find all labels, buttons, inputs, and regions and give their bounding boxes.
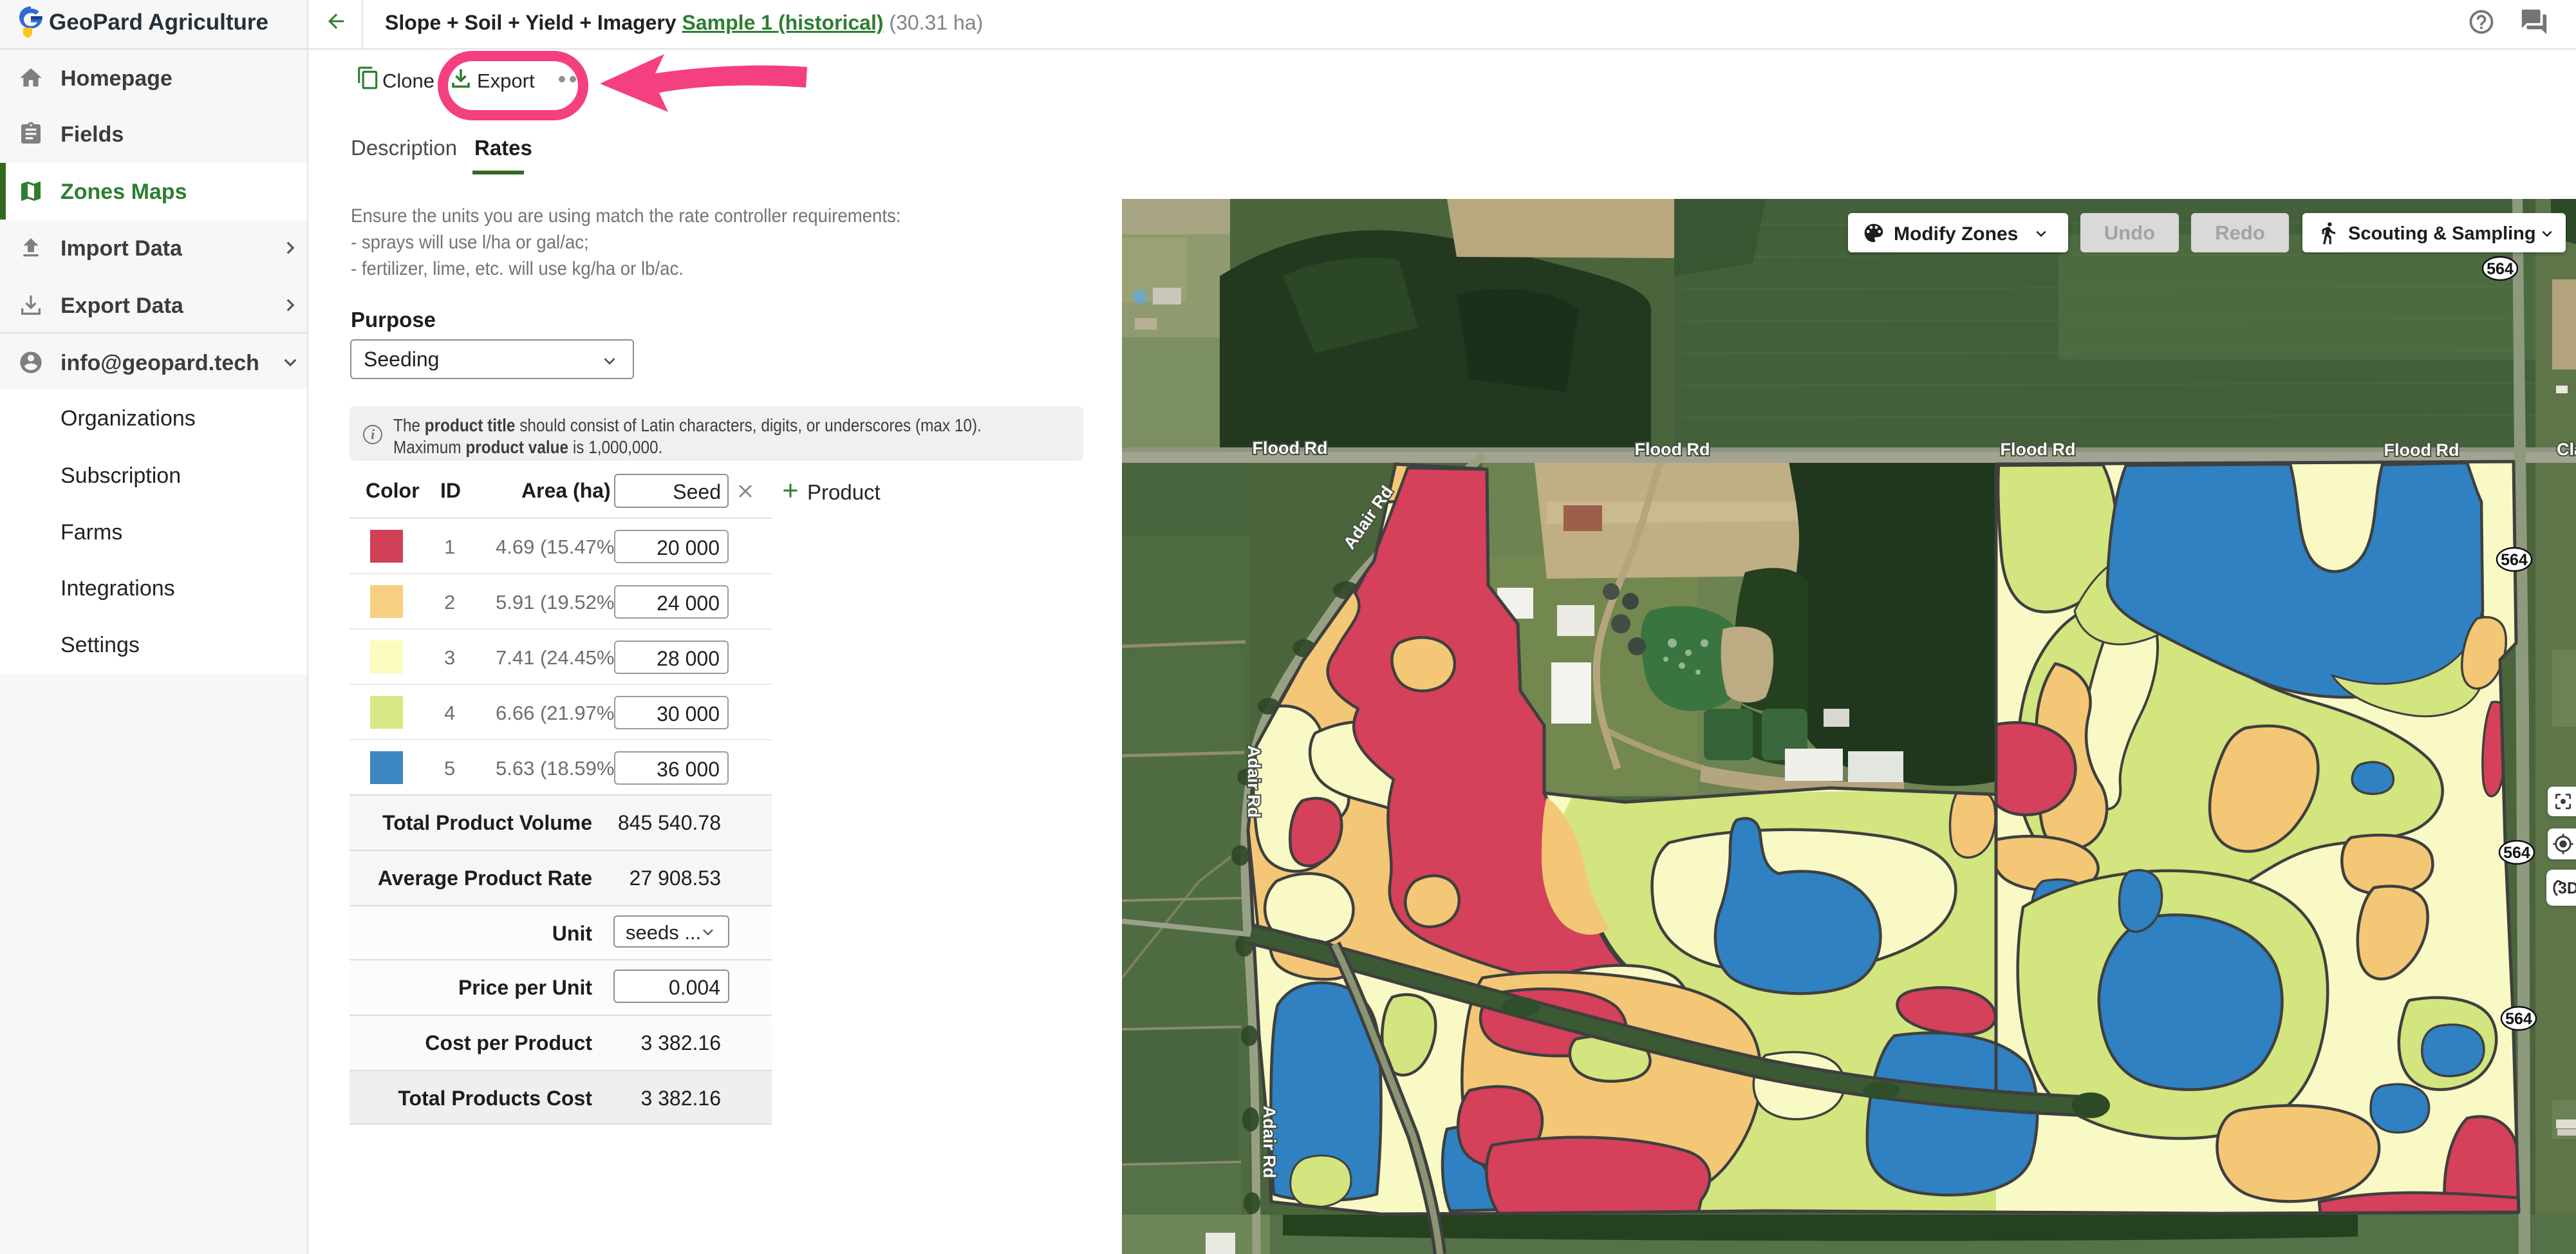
- svg-text:564: 564: [2505, 1010, 2532, 1028]
- svg-text:Adair Rd: Adair Rd: [1244, 745, 1264, 818]
- svg-text:Adair Rd: Adair Rd: [1260, 1106, 1279, 1179]
- svg-text:Flood Rd: Flood Rd: [1635, 440, 1710, 459]
- svg-text:564: 564: [2487, 260, 2514, 278]
- svg-text:Cla: Cla: [2557, 440, 2576, 459]
- svg-text:Flood Rd: Flood Rd: [2001, 440, 2076, 459]
- svg-text:Flood Rd: Flood Rd: [1253, 438, 1328, 458]
- svg-text:564: 564: [2503, 844, 2530, 862]
- svg-text:564: 564: [2501, 551, 2528, 569]
- svg-text:Flood Rd: Flood Rd: [2384, 440, 2459, 460]
